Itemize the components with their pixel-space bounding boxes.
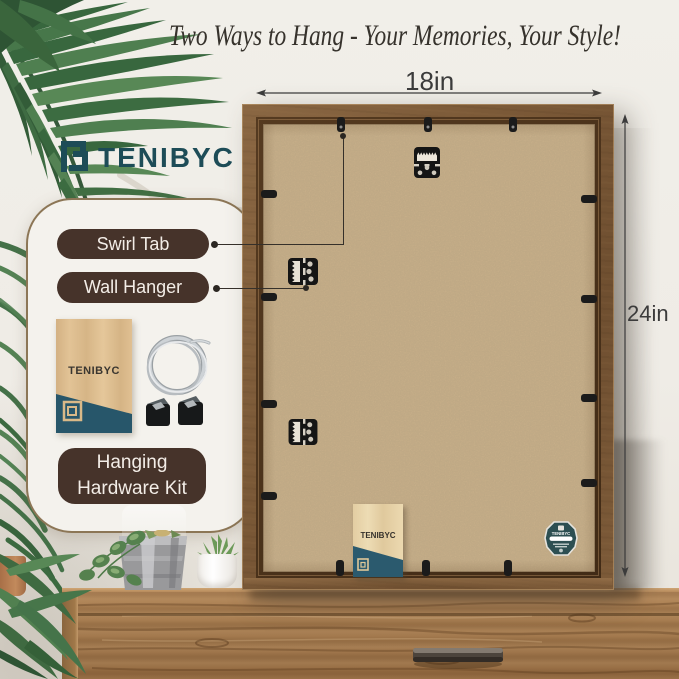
svg-text:TENIBYC: TENIBYC xyxy=(552,531,570,536)
svg-text:Two Ways to Hang - Your Memori: Two Ways to Hang - Your Memories, Your S… xyxy=(169,19,621,52)
